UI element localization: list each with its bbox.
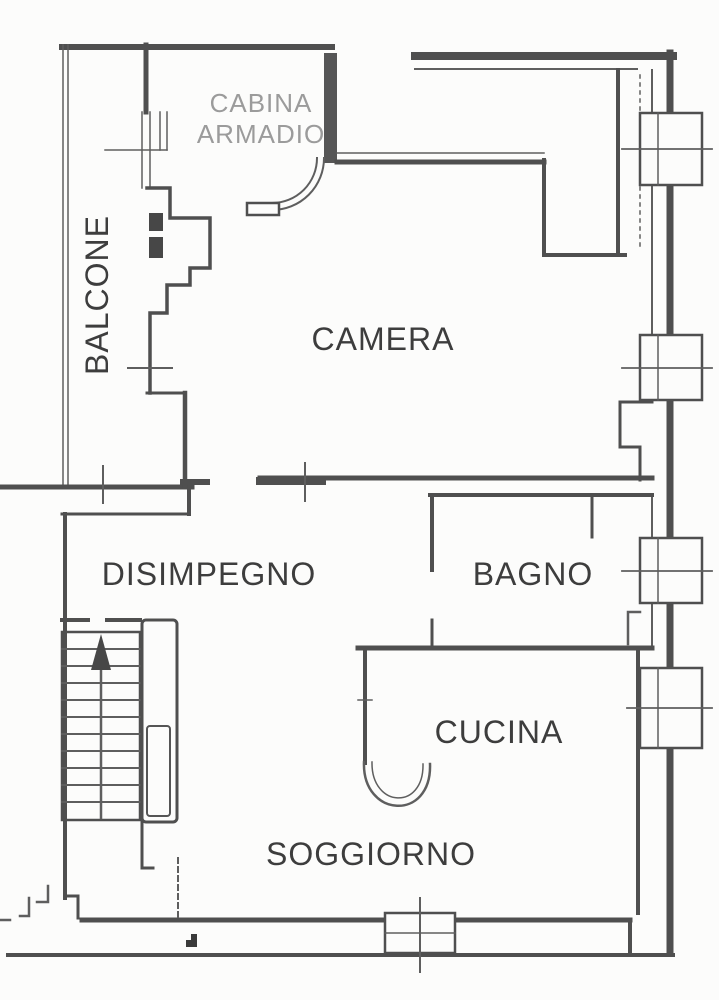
window-icon (622, 335, 712, 400)
staircase (62, 620, 178, 920)
room-label-balcone: BALCONE (79, 215, 115, 375)
door-leaf (247, 203, 279, 215)
room-label-camera: CAMERA (312, 321, 455, 357)
cabina-armadio-walls (247, 53, 640, 255)
soggiorno-walls (82, 920, 630, 953)
wall-segment (628, 612, 640, 644)
wall-pier (324, 53, 337, 163)
window-icon (622, 113, 712, 185)
door-swing-arc (364, 762, 430, 806)
wall-segment (37, 886, 48, 902)
room-label-cabina-armadio-line2: ARMADIO (197, 119, 325, 149)
floor-plan: CABINA ARMADIO BALCONE CAMERA DISIMPEGNO… (0, 0, 719, 1000)
cucina-walls (358, 648, 638, 913)
room-label-bagno: BAGNO (473, 556, 594, 592)
floor-plan-drawing: CABINA ARMADIO BALCONE CAMERA DISIMPEGNO… (0, 0, 719, 1000)
door-swing-arc (272, 158, 317, 203)
left-walls (0, 466, 192, 920)
window-icon (385, 898, 455, 972)
room-label-disimpegno: DISIMPEGNO (102, 556, 316, 592)
wall-stud (149, 213, 163, 231)
door-swing-arc (372, 762, 423, 798)
room-label-cabina-armadio-line1: CABINA (210, 88, 313, 118)
drain-symbol-notch (186, 934, 191, 940)
stair-landing (147, 726, 170, 816)
wall-pilaster (620, 402, 652, 480)
wall-segment (20, 898, 29, 916)
outer-walls (8, 45, 673, 955)
window-icon (622, 538, 712, 603)
room-label-cucina: CUCINA (435, 714, 564, 750)
window-icon (627, 668, 712, 748)
balcony-camera-wall (105, 45, 210, 487)
wall-stud (149, 237, 163, 258)
stair-up-arrow-icon (91, 634, 111, 670)
room-label-soggiorno: SOGGIORNO (266, 836, 476, 872)
wall-segment (142, 822, 153, 868)
